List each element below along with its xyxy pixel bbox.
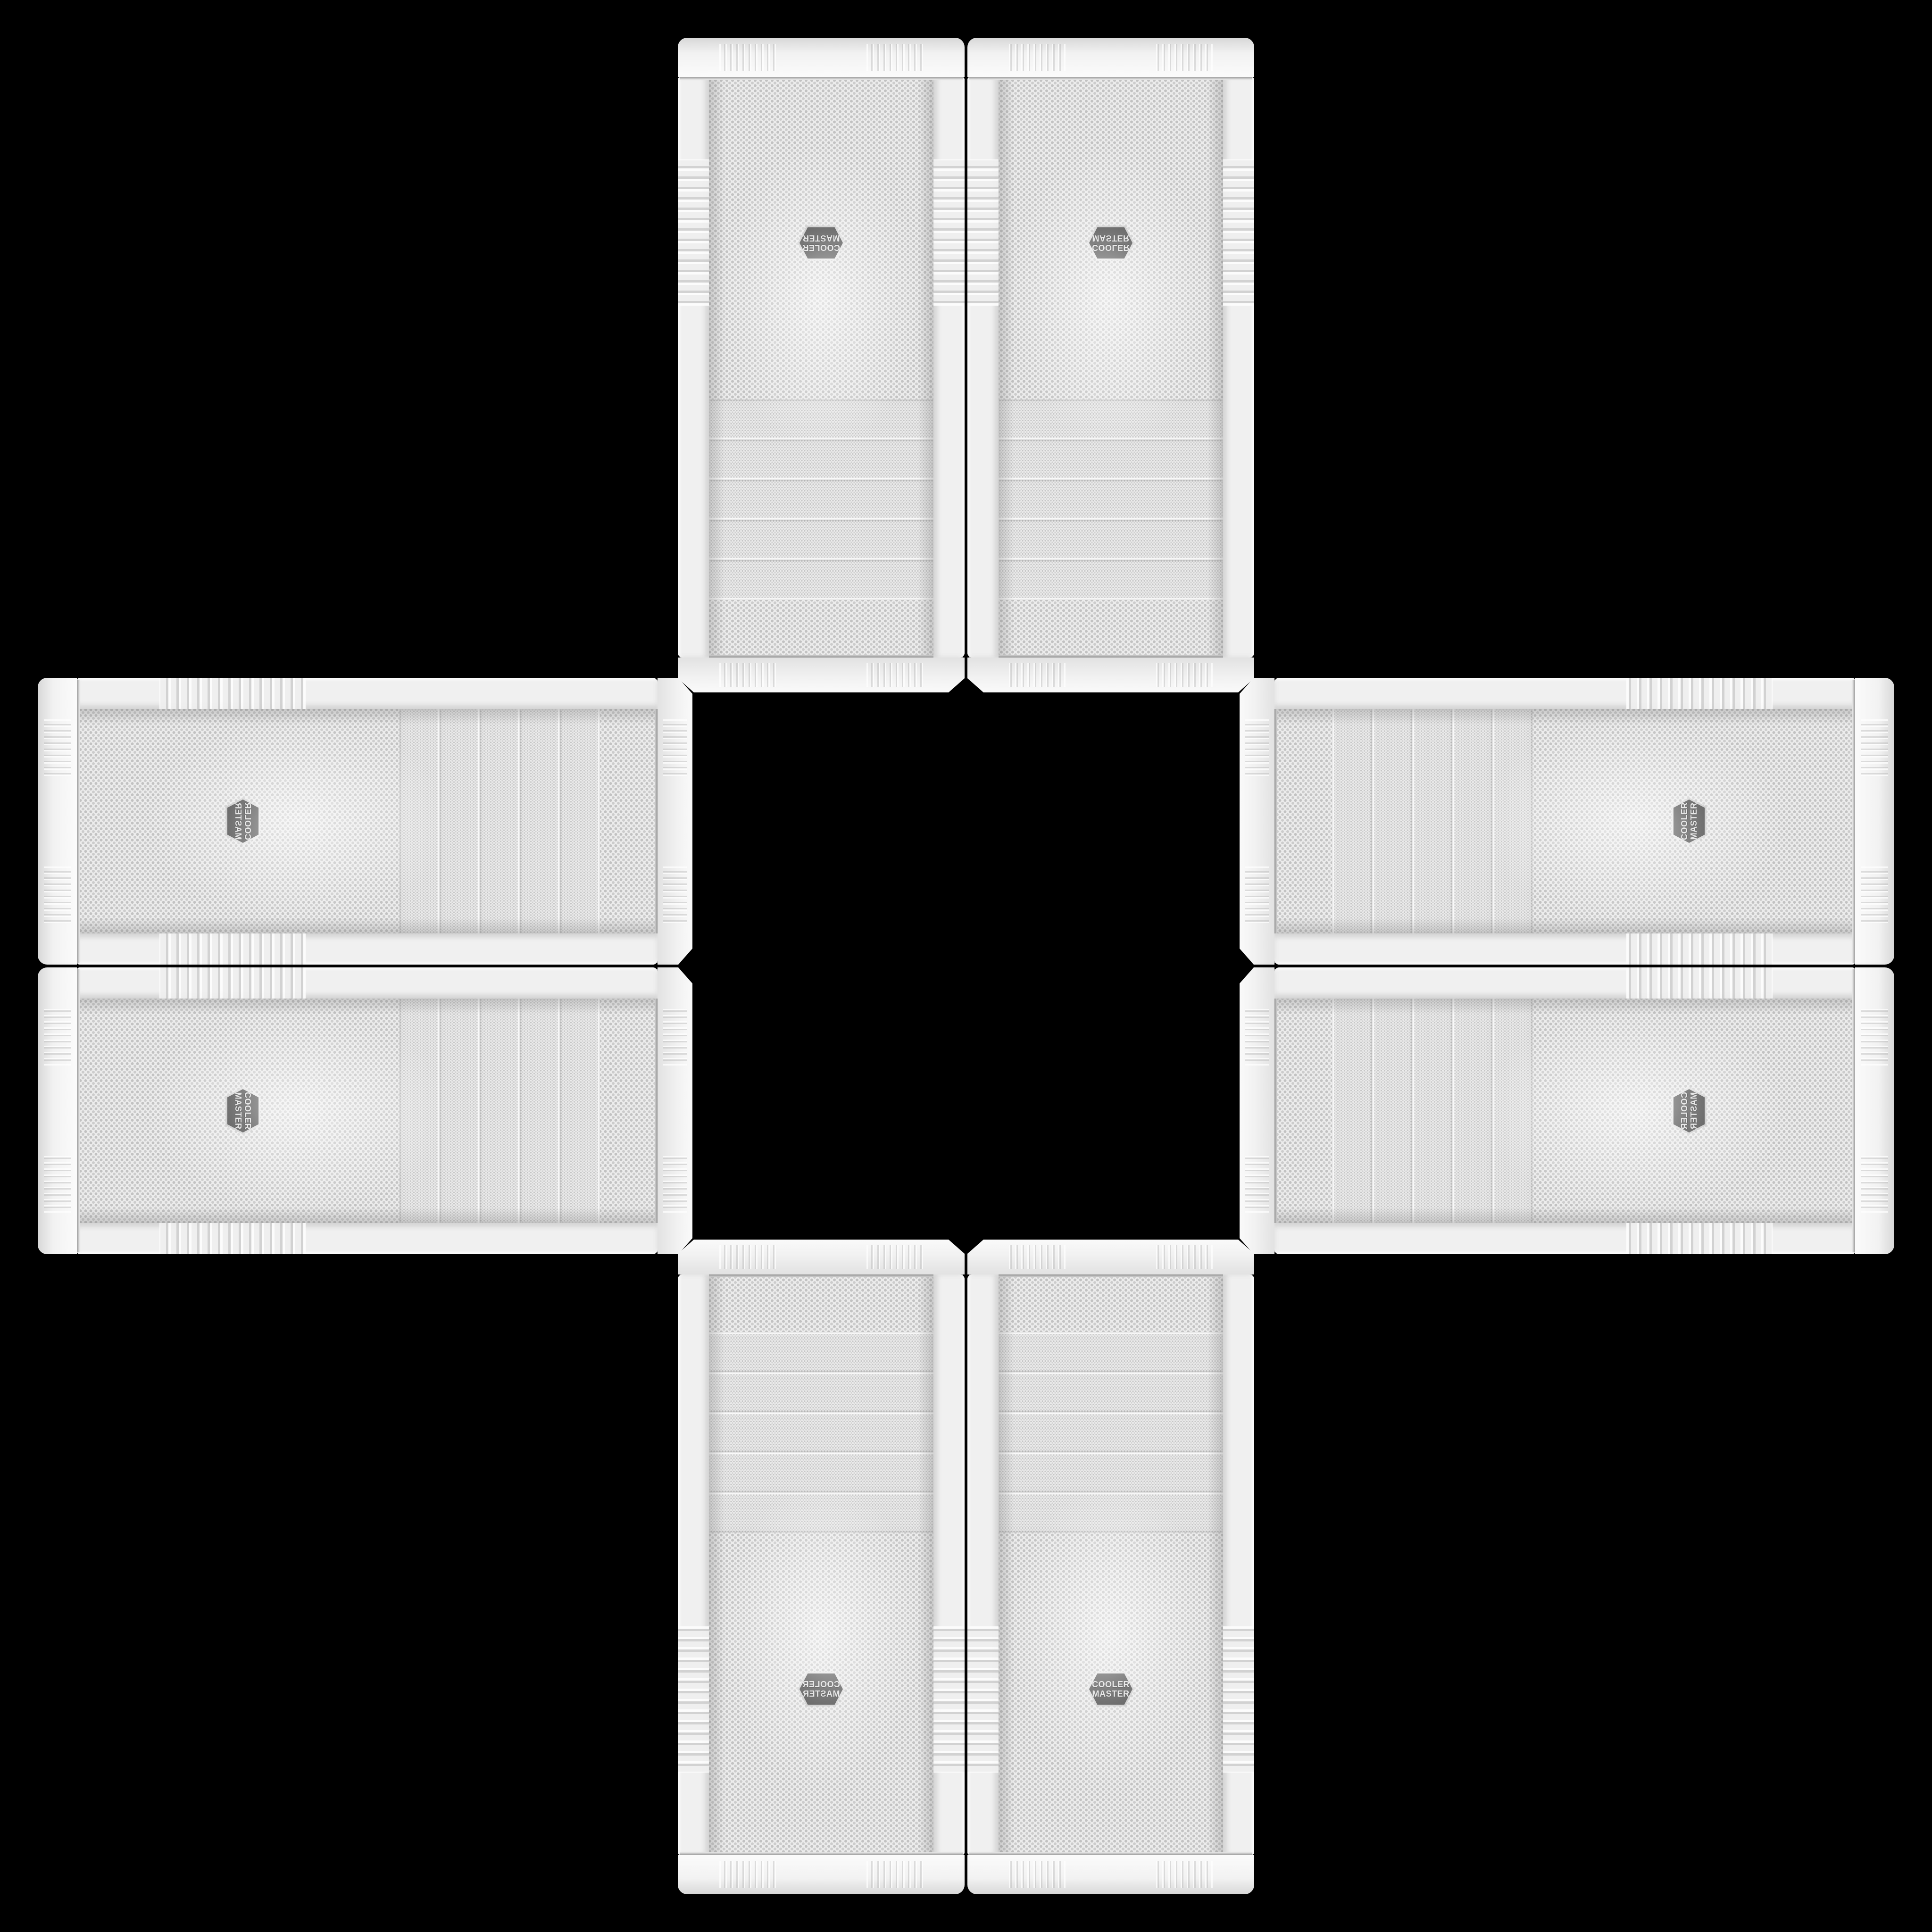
drive-bay-strip (400, 709, 439, 933)
drive-bay-strip (560, 709, 599, 933)
drive-bay-covers (709, 1333, 933, 1532)
rail-grip-ribs (1626, 967, 1773, 999)
drive-bay-covers (709, 400, 933, 599)
rail-grip-ribs (1626, 678, 1773, 709)
logo-text-line1: COOLER (1092, 243, 1130, 252)
side-rail-right (77, 678, 658, 709)
top-band (658, 967, 692, 1254)
chrome-seam-top (969, 655, 1252, 658)
drive-bay-strip (709, 480, 933, 519)
drive-bay-strip (709, 1493, 933, 1532)
drive-bay-strip (999, 480, 1223, 519)
mesh-area: COOLER MASTER (1277, 709, 1852, 933)
mesh-area: COOLER MASTER (999, 1277, 1223, 1852)
band-rib-ticks (1245, 866, 1269, 923)
band-rib-ticks (1861, 719, 1888, 776)
logo-text-line1: COOLER (1680, 802, 1689, 840)
drive-bay-strip (999, 560, 1223, 599)
logo-text-line2: MASTER (1690, 1092, 1699, 1130)
drive-bay-strip (400, 999, 439, 1223)
drive-bay-strip (709, 440, 933, 479)
top-band (678, 658, 965, 692)
drive-bay-strip (999, 440, 1223, 479)
chrome-seam-bottom (77, 680, 80, 963)
side-rail-right (1223, 1274, 1254, 1855)
rail-grip-ribs (967, 1626, 999, 1773)
cooler-master-logo-badge: COOLER MASTER (1670, 1087, 1708, 1134)
drive-bay-strip (1333, 709, 1372, 933)
drive-bay-covers (999, 400, 1223, 599)
panel-right-top-horizontal: COOLER MASTER (1240, 678, 1894, 965)
cooler-master-logo: COOLER MASTER (1089, 1672, 1133, 1706)
drive-bay-strip (999, 1413, 1223, 1452)
band-rib-ticks (663, 866, 687, 923)
rail-grip-ribs (1626, 933, 1773, 965)
drive-bay-strip (999, 1373, 1223, 1412)
band-rib-ticks (719, 44, 776, 70)
drive-bay-strip (709, 1373, 933, 1412)
mesh-area: COOLER MASTER (80, 999, 655, 1223)
mesh-area: COOLER MASTER (709, 1277, 933, 1852)
panel-top-left-vertical: COOLER MASTER (678, 38, 965, 692)
cooler-master-logo-badge: COOLER MASTER (798, 1670, 845, 1708)
band-rib-ticks (1156, 1245, 1213, 1269)
drive-bay-strip (1373, 709, 1412, 933)
top-band (1240, 678, 1274, 965)
drive-bay-strip (480, 999, 519, 1223)
chrome-seam-top (655, 680, 658, 963)
side-rail-right (678, 1274, 709, 1855)
logo-text-line1: COOLER (802, 243, 840, 252)
drive-bay-strip (999, 1453, 1223, 1492)
drive-bay-strip (1453, 709, 1492, 933)
side-rail-left (933, 1274, 965, 1855)
logo-text-line1: COOLER (243, 802, 252, 840)
band-rib-ticks (44, 866, 70, 923)
mesh-strip-top (600, 709, 655, 933)
mesh-area: COOLER MASTER (80, 709, 655, 933)
bottom-band (967, 38, 1254, 77)
drive-bay-strip (709, 520, 933, 559)
band-rib-ticks (1245, 1156, 1269, 1213)
drive-bay-covers (400, 999, 599, 1223)
side-rail-left (1274, 967, 1855, 999)
drive-bay-strip (709, 1413, 933, 1452)
band-rib-ticks (866, 44, 923, 70)
band-rib-ticks (44, 1156, 70, 1213)
side-rail-right (1274, 1223, 1855, 1254)
band-rib-ticks (1245, 719, 1269, 776)
mesh-strip-top (600, 999, 655, 1223)
drive-bay-strip (999, 400, 1223, 439)
rail-grip-ribs (1223, 1626, 1254, 1773)
side-rail-left (77, 967, 658, 999)
drive-bay-strip (1413, 709, 1452, 933)
bottom-band (967, 1855, 1254, 1894)
rail-grip-ribs (678, 1626, 709, 1773)
logo-text-line2: MASTER (1092, 234, 1130, 243)
panel-left-bottom-horizontal: COOLER MASTER (38, 967, 692, 1254)
drive-bay-strip (440, 709, 479, 933)
chrome-seam-bottom (680, 77, 963, 80)
chrome-seam-top (680, 655, 963, 658)
mesh-area: COOLER MASTER (709, 80, 933, 655)
band-rib-ticks (866, 663, 923, 687)
rail-grip-ribs (159, 678, 306, 709)
bottom-band (38, 678, 77, 965)
drive-bay-strip (999, 1333, 1223, 1372)
side-rail-right (1223, 77, 1254, 658)
logo-text-line2: MASTER (1690, 803, 1699, 840)
side-rail-right (77, 1223, 658, 1254)
band-rib-ticks (719, 1861, 776, 1888)
rail-grip-ribs (933, 159, 965, 306)
drive-bay-strip (999, 1493, 1223, 1532)
drive-bay-strip (1493, 709, 1532, 933)
top-band (658, 678, 692, 965)
side-rail-left (967, 1274, 999, 1855)
band-rib-ticks (866, 1861, 923, 1888)
drive-bay-strip (1373, 999, 1412, 1223)
mesh-strip-top (1277, 709, 1332, 933)
drive-bay-strip (1493, 999, 1532, 1223)
band-rib-ticks (1156, 1861, 1213, 1888)
panel-right-bottom-horizontal: COOLER MASTER (1240, 967, 1894, 1254)
top-band (967, 658, 1254, 692)
drive-bay-strip (1333, 999, 1372, 1223)
drive-bay-strip (709, 1453, 933, 1492)
band-rib-ticks (1156, 44, 1213, 70)
cooler-master-logo: COOLER MASTER (1672, 1089, 1706, 1133)
bottom-band (678, 38, 965, 77)
bottom-band (1855, 967, 1894, 1254)
drive-bay-strip (1453, 999, 1492, 1223)
band-rib-ticks (663, 1009, 687, 1066)
side-rail-left (967, 77, 999, 658)
chrome-seam-top (655, 969, 658, 1252)
band-rib-ticks (1861, 1009, 1888, 1066)
cooler-master-logo-badge: COOLER MASTER (1087, 1670, 1134, 1708)
side-rail-left (77, 933, 658, 965)
band-rib-ticks (719, 663, 776, 687)
top-band (678, 1240, 965, 1274)
drive-bay-strip (999, 520, 1223, 559)
band-rib-ticks (719, 1245, 776, 1269)
panel-bottom-left-vertical: COOLER MASTER (678, 1240, 965, 1894)
drive-bay-covers (999, 1333, 1223, 1532)
band-rib-ticks (1156, 663, 1213, 687)
cooler-master-logo-badge: COOLER MASTER (224, 798, 262, 845)
band-rib-ticks (1861, 1156, 1888, 1213)
drive-bay-strip (480, 709, 519, 933)
drive-bay-strip (560, 999, 599, 1223)
logo-text-line1: COOLER (1680, 1092, 1689, 1130)
side-rail-left (933, 77, 965, 658)
front-intake-mesh: COOLER MASTER (999, 1532, 1223, 1852)
band-rib-ticks (1009, 44, 1066, 70)
front-intake-mesh: COOLER MASTER (1532, 999, 1852, 1223)
mesh-strip-top (709, 1277, 933, 1332)
logo-text-line1: COOLER (243, 1092, 252, 1130)
mesh-strip-top (999, 1277, 1223, 1332)
rail-grip-ribs (159, 933, 306, 965)
mesh-strip-top (1277, 999, 1332, 1223)
logo-text-line2: MASTER (1092, 1690, 1130, 1699)
band-rib-ticks (663, 719, 687, 776)
mesh-strip-top (999, 600, 1223, 655)
bottom-band (678, 1855, 965, 1894)
bottom-band (1855, 678, 1894, 965)
band-rib-ticks (663, 1156, 687, 1213)
mesh-area: COOLER MASTER (1277, 999, 1852, 1223)
cooler-master-logo-badge: COOLER MASTER (1670, 798, 1708, 845)
drive-bay-strip (520, 709, 559, 933)
panel-left-top-horizontal: COOLER MASTER (38, 678, 692, 965)
cooler-master-logo-badge: COOLER MASTER (224, 1087, 262, 1134)
front-intake-mesh: COOLER MASTER (1532, 709, 1852, 933)
side-rail-right (678, 77, 709, 658)
side-rail-right (1274, 678, 1855, 709)
cooler-master-logo: COOLER MASTER (799, 226, 843, 260)
band-rib-ticks (44, 719, 70, 776)
rail-grip-ribs (159, 1223, 306, 1254)
drive-bay-strip (1413, 999, 1452, 1223)
logo-text-line2: MASTER (803, 234, 840, 243)
band-rib-ticks (44, 1009, 70, 1066)
drive-bay-strip (709, 400, 933, 439)
band-rib-ticks (1861, 866, 1888, 923)
product-collage: COOLER MASTER (0, 0, 1932, 1932)
top-band (967, 1240, 1254, 1274)
rail-grip-ribs (967, 159, 999, 306)
front-intake-mesh: COOLER MASTER (999, 80, 1223, 400)
cooler-master-logo: COOLER MASTER (226, 1089, 260, 1133)
front-intake-mesh: COOLER MASTER (709, 1532, 933, 1852)
drive-bay-covers (1333, 709, 1532, 933)
rail-grip-ribs (159, 967, 306, 999)
chrome-seam-bottom (969, 77, 1252, 80)
drive-bay-strip (440, 999, 479, 1223)
band-rib-ticks (1009, 1245, 1066, 1269)
cooler-master-logo-badge: COOLER MASTER (798, 224, 845, 262)
front-intake-mesh: COOLER MASTER (80, 709, 400, 933)
band-rib-ticks (866, 1245, 923, 1269)
rail-grip-ribs (933, 1626, 965, 1773)
cooler-master-logo: COOLER MASTER (226, 799, 260, 843)
drive-bay-strip (520, 999, 559, 1223)
rail-grip-ribs (678, 159, 709, 306)
drive-bay-strip (709, 560, 933, 599)
side-rail-left (1274, 933, 1855, 965)
logo-text-line2: MASTER (803, 1690, 840, 1699)
band-rib-ticks (1009, 1861, 1066, 1888)
drive-bay-strip (709, 1333, 933, 1372)
cooler-master-logo: COOLER MASTER (1672, 799, 1706, 843)
rail-grip-ribs (1223, 159, 1254, 306)
front-intake-mesh: COOLER MASTER (80, 999, 400, 1223)
logo-text-line2: MASTER (234, 1092, 243, 1130)
cooler-master-logo: COOLER MASTER (1089, 226, 1133, 260)
logo-text-line1: COOLER (802, 1680, 840, 1689)
bottom-band (38, 967, 77, 1254)
cooler-master-logo: COOLER MASTER (799, 1672, 843, 1706)
logo-text-line1: COOLER (1092, 1680, 1130, 1689)
band-rib-ticks (1009, 663, 1066, 687)
rail-grip-ribs (1626, 1223, 1773, 1254)
drive-bay-covers (400, 709, 599, 933)
front-intake-mesh: COOLER MASTER (709, 80, 933, 400)
mesh-strip-top (709, 600, 933, 655)
band-rib-ticks (1245, 1009, 1269, 1066)
chrome-seam-bottom (77, 969, 80, 1252)
cooler-master-logo-badge: COOLER MASTER (1087, 224, 1134, 262)
logo-text-line2: MASTER (234, 803, 243, 840)
panel-top-right-vertical: COOLER MASTER (967, 38, 1254, 692)
top-band (1240, 967, 1274, 1254)
drive-bay-covers (1333, 999, 1532, 1223)
panel-bottom-right-vertical: COOLER MASTER (967, 1240, 1254, 1894)
mesh-area: COOLER MASTER (999, 80, 1223, 655)
